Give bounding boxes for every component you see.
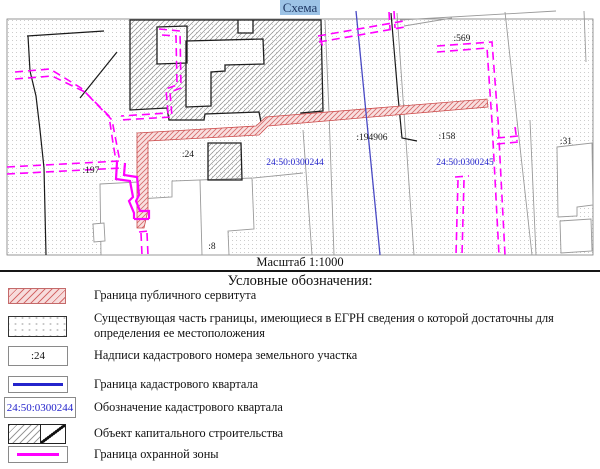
legend-label: Существующая часть границы, имеющиеся в … xyxy=(94,311,594,342)
legend-label: Граница кадастрового квартала xyxy=(94,377,594,392)
legend-label: Граница охранной зоны xyxy=(94,447,594,462)
legend-row-protection-zone: Граница охранной зоны xyxy=(8,446,594,463)
scheme-document: Схема xyxy=(0,0,600,469)
servitude-symbol xyxy=(8,288,66,304)
cadastral-map: :569 :194906 :158 :31 :24 :197 :8 24:50:… xyxy=(0,9,600,257)
label-quarter-244: 24:50:0300244 xyxy=(266,158,324,168)
quarter-boundary-symbol xyxy=(8,376,68,393)
label-8: :8 xyxy=(208,242,216,252)
capital-object-symbol xyxy=(8,424,66,444)
legend-label: Надписи кадастрового номера земельного у… xyxy=(94,348,594,363)
legend-row-capital-object: Объект капитального строительства xyxy=(8,424,594,444)
hatch-half-icon xyxy=(9,425,41,443)
legend-row-servitude: Граница публичного сервитута xyxy=(8,288,594,304)
label-quarter-245: 24:50:0300245 xyxy=(436,158,494,168)
parcel-number-symbol: :24 xyxy=(8,346,68,366)
legend-row-existing-boundary: Существующая часть границы, имеющиеся в … xyxy=(8,311,594,342)
blue-line-icon xyxy=(13,383,63,386)
legend-label: Обозначение кадастрового квартала xyxy=(94,400,594,415)
section-divider xyxy=(0,270,600,272)
label-24: :24 xyxy=(182,150,194,160)
label-194906: :194906 xyxy=(356,133,387,143)
label-197: :197 xyxy=(83,166,100,176)
legend-label: Граница публичного сервитута xyxy=(94,288,594,303)
magenta-line-icon xyxy=(17,453,59,456)
protection-zone-symbol xyxy=(8,446,68,463)
legend-row-quarter-boundary: Граница кадастрового квартала xyxy=(8,376,594,393)
label-31: :31 xyxy=(560,137,572,147)
label-158: :158 xyxy=(439,132,456,142)
scale-label: Масштаб 1:1000 xyxy=(0,255,600,270)
legend-row-parcel-number: :24 Надписи кадастрового номера земельно… xyxy=(8,346,594,366)
label-569: :569 xyxy=(454,34,471,44)
legend-label: Объект капитального строительства xyxy=(94,426,594,441)
legend-row-quarter-designation: 24:50:0300244 Обозначение кадастрового к… xyxy=(8,397,594,418)
diagonal-half-icon xyxy=(41,425,65,443)
quarter-designation-symbol: 24:50:0300244 xyxy=(4,397,76,418)
existing-boundary-symbol xyxy=(8,316,67,337)
